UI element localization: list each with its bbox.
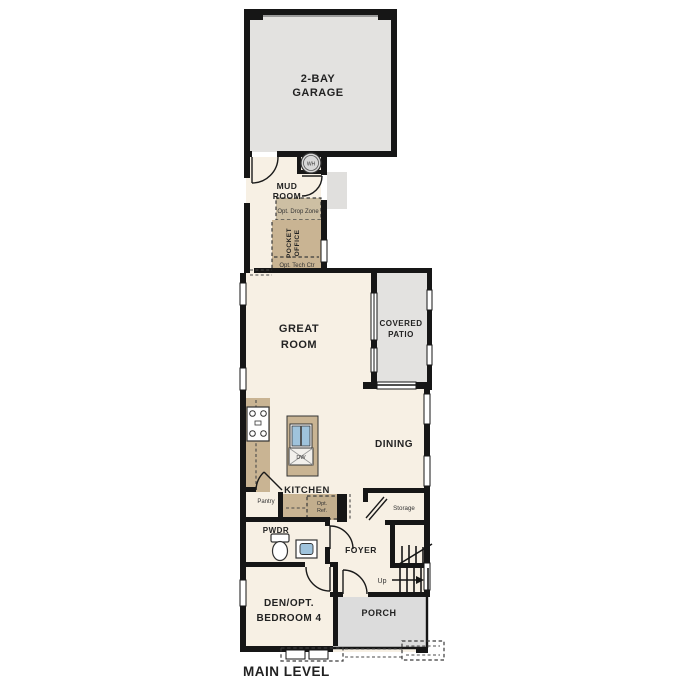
side-stoop xyxy=(327,172,347,209)
great-room-window-lower xyxy=(240,368,246,390)
opt-ref-label-1: Opt. xyxy=(317,501,328,507)
great-room-window-upper xyxy=(240,283,246,305)
den-label-2: BEDROOM 4 xyxy=(256,613,321,624)
patio-opening-upper xyxy=(427,290,432,310)
foyer-label: FOYER xyxy=(345,545,377,555)
pocket-office-label-2: OFFICE xyxy=(294,229,301,256)
den-label-1: DEN/OPT. xyxy=(264,598,314,609)
den-window xyxy=(240,580,246,606)
water-heater-label: WH xyxy=(307,162,316,168)
pocket-office-window xyxy=(321,240,327,262)
level-title: MAIN LEVEL xyxy=(243,664,330,679)
stairs-up-label: Up xyxy=(378,578,387,585)
porch-label: PORCH xyxy=(361,608,396,618)
floorplan-drawing: 2-BAY GARAGE MUD ROOM Opt. Drop Zone POC… xyxy=(0,0,687,687)
garage-label-2: GARAGE xyxy=(292,87,343,99)
garage-door-jamb-right xyxy=(378,15,392,20)
great-room-label-2: ROOM xyxy=(281,339,317,351)
opt-tech-ctr-label: Opt. Tech Ctr xyxy=(279,263,314,269)
opt-drop-zone-label: Opt. Drop Zone xyxy=(277,209,319,215)
storage-label: Storage xyxy=(393,505,415,512)
floorplan-page: 2-BAY GARAGE MUD ROOM Opt. Drop Zone POC… xyxy=(0,0,687,687)
island-sink-icon xyxy=(290,424,312,448)
stove-icon xyxy=(247,407,269,441)
covered-patio-label-1: COVERED xyxy=(379,319,422,328)
pantry-label: Pantry xyxy=(257,499,274,505)
mud-room-label-1: MUD xyxy=(277,181,298,191)
porch-room xyxy=(333,597,427,648)
dishwasher-label: DW xyxy=(296,455,306,461)
kitchen-label: KITCHEN xyxy=(284,485,330,496)
toilet-icon xyxy=(271,534,289,561)
garage-door-jamb-left xyxy=(249,15,263,20)
powder-sink-icon xyxy=(296,540,317,558)
dining-window-lower xyxy=(424,456,430,486)
great-room-label-1: GREAT xyxy=(279,323,319,335)
dining-window-upper xyxy=(424,394,430,424)
pocket-office-label-1: POCKET xyxy=(286,228,293,258)
patio-opening-lower xyxy=(427,345,432,365)
powder-label: PWDR xyxy=(263,526,289,535)
garage-label-1: 2-BAY xyxy=(301,73,336,85)
mud-room-label-2: ROOM xyxy=(273,191,301,201)
dining-label: DINING xyxy=(375,439,413,450)
stair-window xyxy=(424,563,430,590)
garage-door xyxy=(263,15,378,17)
opt-ref-label-2: Ref. xyxy=(317,508,328,514)
covered-patio-label-2: PATIO xyxy=(388,330,414,339)
covered-patio-room xyxy=(377,273,432,385)
